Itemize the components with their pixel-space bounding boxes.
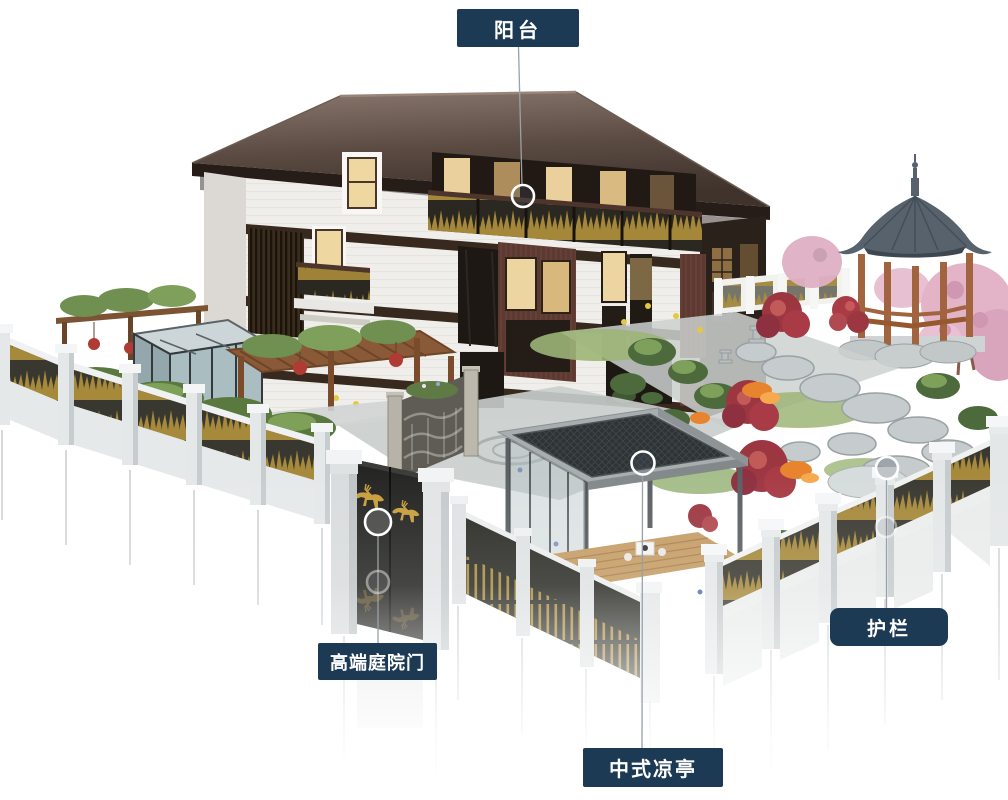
callout-pavilion-label: 中式凉亭	[583, 748, 723, 787]
callout-railing-label: 护栏	[830, 608, 948, 646]
maroon-window-feature	[498, 242, 576, 382]
callout-balcony-label: 阳台	[457, 9, 579, 47]
villa-showcase-page: 阳台 高端庭院门 中式凉亭 护栏	[0, 0, 1008, 800]
chinese-gazebo	[829, 154, 992, 368]
callout-gate-label: 高端庭院门	[318, 643, 437, 680]
scene-illustration	[0, 0, 1008, 800]
louver-screen	[248, 228, 304, 338]
